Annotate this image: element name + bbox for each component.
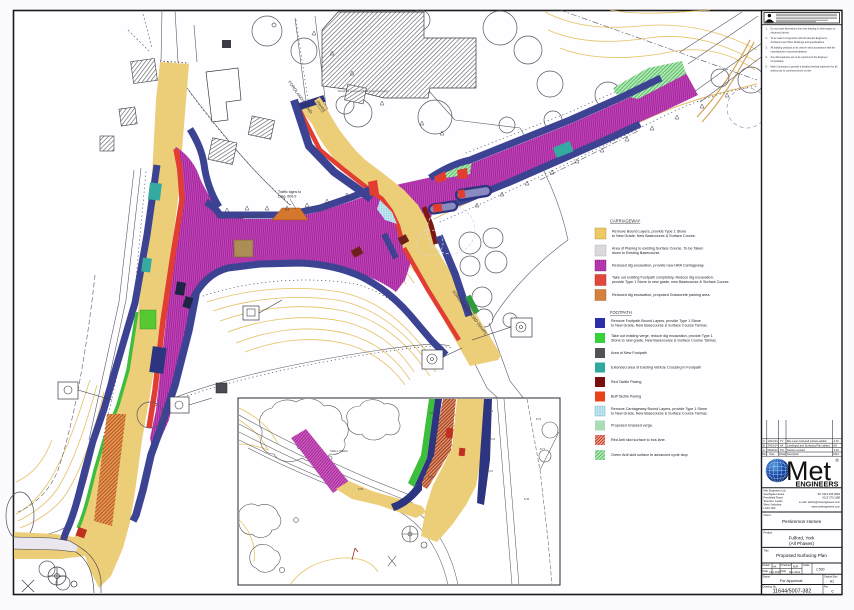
svg-text:Reduced dig excavation, pro: Reduced dig excavation, provide new HRA … [612, 264, 704, 268]
svg-text:Green Anti skid surface to: Green Anti skid surface to advanced cycl… [611, 453, 688, 457]
svg-text:12/12/14: 12/12/14 [768, 439, 779, 443]
svg-text:immediately.: immediately. [771, 60, 785, 63]
svg-text:e-mail: admin@metengineers.com: e-mail: admin@metengineers.com [799, 500, 841, 504]
svg-text:works prior to commencement on: works prior to commencement on site. [771, 69, 813, 72]
svg-text:Nov 2012: Nov 2012 [770, 570, 782, 574]
svg-text:1:500: 1:500 [816, 568, 825, 572]
svg-text:TV: TV [780, 439, 784, 443]
svg-text:Remove Bound Layers, provid: Remove Bound Layers, provide Type 1 Ston… [612, 230, 686, 234]
svg-text:CARRIAGEWAY: CARRIAGEWAY [610, 219, 641, 224]
svg-text:For Approval: For Approval [780, 578, 803, 583]
svg-text:A: A [763, 448, 765, 452]
svg-text:Area of Planing to existin: Area of Planing to existing Surface Cour… [612, 247, 703, 251]
svg-text:Extended area of Existing: Extended area of Existing Vehicle Crossi… [611, 366, 701, 370]
svg-text:to New Grade, New Basecour: to New Grade, New Basecourse & Surface C… [611, 324, 708, 328]
svg-text:Checked: Checked [781, 563, 792, 567]
svg-text:AK: AK [780, 443, 784, 447]
svg-text:8.71: 8.71 [540, 447, 546, 451]
svg-text:provide Type 1 Stone to n: provide Type 1 Stone to new grade, new B… [612, 280, 730, 284]
svg-text:To be read in conjunction: To be read in conjunction with all relev… [771, 37, 829, 40]
svg-text:Drawn: Drawn [763, 563, 771, 567]
svg-text:2.: 2. [766, 37, 768, 40]
svg-text:Met Engineers Ltd: Met Engineers Ltd [764, 489, 786, 493]
svg-text:Southgate House: Southgate House [764, 492, 785, 496]
svg-text:to New Grade, New Basecour: to New Grade, New Basecourse & Surface C… [611, 412, 708, 416]
svg-text:Do not scale dimensions from t: Do not scale dimensions from this drawin… [771, 28, 836, 31]
svg-text:MJR: MJR [793, 565, 798, 569]
svg-text:24/10/14: 24/10/14 [768, 443, 779, 447]
svg-text:Project: Project [764, 531, 773, 535]
svg-text:Tel: 0113 255 0660: Tel: 0113 255 0660 [817, 492, 840, 496]
svg-text:Remove Carriageway Bound La: Remove Carriageway Bound Layers, provide… [611, 407, 707, 411]
svg-text:Client: Client [764, 513, 771, 517]
svg-text:Original Size: Original Size [824, 576, 838, 579]
svg-text:(All Phases): (All Phases) [789, 541, 814, 546]
svg-text:Reduced dig excavation, pro: Reduced dig excavation, proposed Grasscr… [612, 293, 710, 297]
svg-text:06/02/14: 06/02/14 [768, 448, 779, 452]
svg-text:electronic format.: electronic format. [771, 31, 790, 34]
svg-text:All building products to be us: All building products to be used in stri… [771, 47, 836, 50]
svg-text:down to Existing Basecourse: down to Existing Basecourse. [612, 251, 660, 255]
svg-text:Landings/Lane Surfacing Plan a: Landings/Lane Surfacing Plan added [787, 443, 830, 447]
svg-text:8.26: 8.26 [428, 475, 434, 479]
svg-text:Date: Date [770, 453, 776, 456]
svg-text:1.: 1. [766, 28, 768, 31]
svg-text:8.79: 8.79 [536, 417, 542, 421]
svg-text:Area of New Footpath: Area of New Footpath [611, 351, 647, 355]
svg-text:Buff Tactile Paving: Buff Tactile Paving [611, 395, 641, 399]
svg-text:Persimmon Homes: Persimmon Homes [782, 519, 822, 524]
svg-text:Take out existing verge, r: Take out existing verge, reduce dig exca… [611, 334, 713, 338]
svg-text:Scale: Scale [803, 563, 810, 567]
svg-text:to New Grade, New Basecour: to New Grade, New Basecourse & Surface C… [612, 234, 696, 238]
svg-text:Status: Status [763, 575, 771, 579]
svg-text:8.45: 8.45 [524, 497, 530, 501]
svg-text:Main Contractor to provide a d: Main Contractor to provide a detailed me… [771, 66, 838, 69]
svg-text:Proposed Grassed verge.: Proposed Grassed verge. [611, 424, 653, 428]
svg-text:SMALL TREES: SMALL TREES [330, 449, 348, 453]
svg-text:Freshfield Road: Freshfield Road [764, 496, 783, 500]
svg-text:Remove Footpath Bound Layer: Remove Footpath Bound Layers, provide Ty… [611, 319, 701, 323]
svg-text:5.: 5. [766, 66, 768, 69]
svg-text:Proposed Surfacing Plan: Proposed Surfacing Plan [776, 553, 827, 558]
svg-text:8.21: 8.21 [488, 469, 494, 473]
svg-text:Rev.: Rev. [824, 586, 829, 589]
svg-text:8.31: 8.31 [490, 437, 496, 441]
svg-text:4.19: 4.19 [834, 448, 840, 452]
svg-text:8.68: 8.68 [430, 411, 436, 415]
svg-text:FOOTPATH: FOOTPATH [610, 310, 632, 315]
svg-text:Take out existing Footpath: Take out existing Footpath completely, R… [612, 276, 714, 280]
svg-text:Stone to new grade, New B: Stone to new grade, New Basecourse & Sur… [611, 339, 717, 343]
svg-text:Retained proposed Pedestrian: Retained proposed Pedestrian Crossing [338, 89, 388, 93]
svg-text:Nov 2012: Nov 2012 [789, 570, 801, 574]
svg-text:Fulford, York: Fulford, York [789, 536, 815, 541]
svg-text:Date: Date [763, 569, 769, 573]
svg-text:PH: PH [780, 448, 784, 452]
svg-text:8.51: 8.51 [488, 409, 494, 413]
svg-text:Architect's and Other Drawings: Architect's and Other Drawings and speci… [771, 41, 826, 44]
svg-text:0113 270 1188: 0113 270 1188 [822, 496, 840, 500]
svg-text:AK: AK [773, 565, 777, 569]
svg-text:8.39: 8.39 [432, 441, 438, 445]
svg-text:B: B [763, 443, 765, 447]
svg-text:ENGINEERS: ENGINEERS [796, 479, 839, 488]
svg-text:3.: 3. [766, 47, 768, 50]
svg-text:LS10 1DF: LS10 1DF [764, 506, 776, 510]
svg-text:Red Tactile Paving: Red Tactile Paving [611, 380, 641, 384]
svg-text:Section revised: Section revised [787, 448, 805, 452]
svg-text:www.metengineers.com: www.metengineers.com [811, 505, 840, 509]
svg-text:Bus Lane Coloured surface adde: Bus Lane Coloured surface added [787, 439, 827, 443]
svg-text:manufacturer's recommendations: manufacturer's recommendations. [771, 50, 808, 53]
svg-text:Stourton, Leeds: Stourton, Leeds [764, 499, 784, 503]
svg-text:Chkd: Chkd [833, 453, 839, 456]
svg-text:8.05: 8.05 [358, 487, 364, 491]
svg-text:A1: A1 [830, 579, 834, 583]
svg-text:Traffic signs to: Traffic signs to [278, 190, 301, 194]
svg-text:11644/5007-382: 11644/5007-382 [773, 589, 812, 595]
svg-text:C: C [763, 439, 765, 443]
svg-text:Date: Date [781, 569, 787, 573]
svg-text:Diag. 609.9: Diag. 609.9 [278, 195, 296, 199]
svg-text:4.19: 4.19 [834, 439, 840, 443]
svg-text:Red Anti skid surface to: Red Anti skid surface to bus lane. [611, 438, 666, 442]
svg-text:4.: 4. [766, 56, 768, 59]
svg-text:Any discrepancies are to b: Any discrepancies are to be reported to … [771, 56, 828, 59]
svg-text:Title: Title [764, 548, 770, 552]
svg-text:West Yorkshire: West Yorkshire [764, 503, 782, 507]
